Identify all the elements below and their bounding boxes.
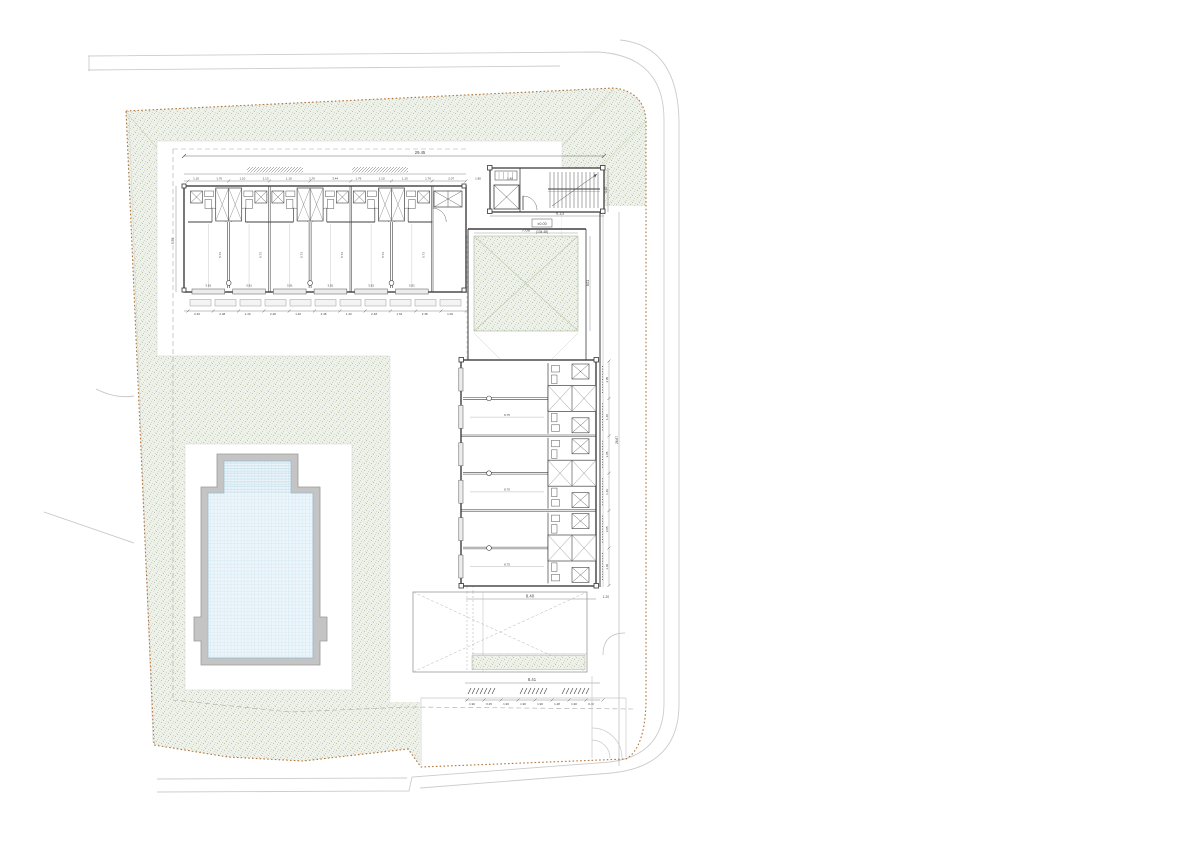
- planter-strip: [472, 656, 585, 670]
- elevator: [494, 185, 519, 209]
- dim-label: 1.90: [503, 702, 509, 706]
- dim-wing-bottom: 8.40: [526, 594, 535, 599]
- floor-plan-page: 29.45 5.75 6.13 3.40 ±0: [0, 0, 1200, 848]
- dim-label: 1.76: [425, 177, 431, 181]
- dim-label: 3.81: [246, 284, 252, 288]
- dim-courtyard-width: 7.00: [522, 228, 531, 233]
- dim-label: 1.10: [239, 177, 245, 181]
- level-value: ±0.00: [537, 222, 546, 226]
- dim-label: 0.40: [588, 702, 594, 706]
- dim-label: 5.73: [340, 252, 344, 258]
- dim-label: 3.81: [368, 284, 374, 288]
- dim-courtyard-height: 8.01: [586, 280, 590, 286]
- dim-label: 1.76: [309, 177, 315, 181]
- dim-label: 1.13: [263, 177, 269, 181]
- dim-stair-width: 6.13: [556, 211, 565, 216]
- dim-label: 1.40: [605, 414, 609, 420]
- dim-label: 2.48: [422, 312, 428, 316]
- dim-label: 3.05: [605, 376, 609, 382]
- dim-label: 1.10: [379, 177, 385, 181]
- dim-label: 0.45: [486, 702, 492, 706]
- dim-label: 1.13: [402, 177, 408, 181]
- pool-steps: [224, 461, 291, 493]
- dim-label: 1.40: [245, 312, 251, 316]
- roof-hatch: [352, 167, 408, 173]
- dim-label: 1.40: [346, 312, 352, 316]
- dim-label: 2.48: [321, 312, 327, 316]
- dim-label: 3.81: [205, 284, 211, 288]
- dim-label: 5.73: [259, 252, 263, 258]
- dim-label: 3.05: [605, 451, 609, 457]
- dim-label: 8.75: [504, 488, 510, 492]
- dim-label: 3.81: [328, 284, 334, 288]
- dim-label: 1.76: [216, 177, 222, 181]
- dim-label: 3.81: [287, 284, 293, 288]
- dim-label: 1.40: [507, 177, 513, 181]
- dim-label: 3.05: [605, 526, 609, 532]
- dim-label: 2.48: [219, 312, 225, 316]
- dim-label: 5.73: [299, 252, 303, 258]
- dim-label: 3.81: [409, 284, 415, 288]
- dim-label: 1.28: [554, 702, 560, 706]
- dim-label: 2.07: [448, 177, 454, 181]
- dim-label: 1.80: [475, 177, 481, 181]
- dim-wing-bottom-side: 1.20: [603, 595, 609, 599]
- dim-label: 2.48: [270, 312, 276, 316]
- roof-hatch: [247, 167, 303, 173]
- terrace-deck: [190, 300, 461, 307]
- dim-label: 1.90: [469, 702, 475, 706]
- dim-label: 8.75: [504, 413, 510, 417]
- dim-label: 5.73: [422, 252, 426, 258]
- dim-label: 1.64: [396, 312, 402, 316]
- dim-right-overall: 26.67: [615, 436, 619, 444]
- dim-label: 5.73: [381, 252, 385, 258]
- dim-label: 8.75: [504, 563, 510, 567]
- dim-stair-depth: 3.40: [604, 187, 608, 193]
- dim-label: 1.40: [295, 312, 301, 316]
- dim-label: 1.10: [193, 177, 199, 181]
- dim-label: 5.73: [218, 252, 222, 258]
- dim-label: 2.48: [371, 312, 377, 316]
- dim-canopy-width: 8.41: [528, 677, 537, 682]
- dim-label: 1.40: [605, 489, 609, 495]
- dim-label: 1.09: [447, 312, 453, 316]
- dim-label: 1.76: [355, 177, 361, 181]
- dim-label: 1.90: [520, 702, 526, 706]
- dim-label: 1.40: [605, 563, 609, 569]
- site-plan-drawing: 29.45 5.75 6.13 3.40 ±0: [0, 0, 1200, 848]
- dim-label: 1.90: [537, 702, 543, 706]
- dim-label: 0.40: [194, 312, 200, 316]
- dim-label: 1.10: [286, 177, 292, 181]
- dim-label: 3.44: [332, 177, 338, 181]
- area-value: (134.48): [536, 230, 548, 234]
- dim-wing-depth: 5.75: [171, 238, 175, 244]
- dim-label: 1.90: [571, 702, 577, 706]
- dim-overall-width: 29.45: [415, 150, 426, 155]
